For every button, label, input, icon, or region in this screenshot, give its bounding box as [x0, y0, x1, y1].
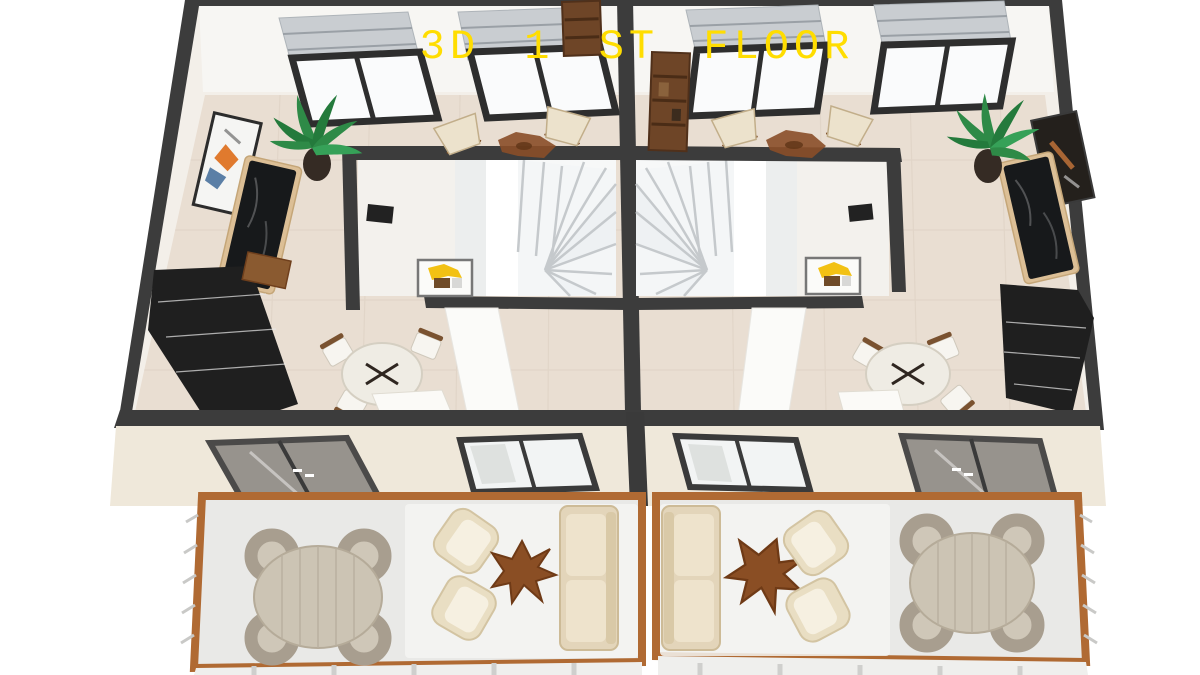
outdoor-sofa — [560, 506, 618, 650]
left-inner-door — [366, 204, 394, 224]
outdoor-sofa — [662, 506, 720, 650]
window — [292, 52, 438, 124]
door-handle — [293, 469, 302, 472]
front-window — [460, 436, 596, 492]
right-terrace — [656, 496, 1097, 675]
inner-wall — [632, 296, 864, 310]
front-wall-top — [114, 410, 1100, 428]
outdoor-dining-area — [906, 520, 1038, 646]
door-handle — [952, 468, 961, 471]
floor-plan-canvas: 3D 1 ST FLOOR — [0, 0, 1200, 675]
yellow-artwork — [806, 258, 860, 294]
window — [874, 41, 1012, 111]
yellow-artwork — [418, 260, 472, 296]
right-inner-door — [848, 203, 874, 221]
inner-wall — [348, 146, 626, 160]
outdoor-dining-area — [251, 535, 385, 659]
floor-title: 3D 1 ST FLOOR — [420, 23, 855, 71]
front-window — [676, 436, 810, 490]
floor-plan-rendering: 3D 1 ST FLOOR — [0, 0, 1200, 675]
left-terrace — [181, 496, 642, 675]
